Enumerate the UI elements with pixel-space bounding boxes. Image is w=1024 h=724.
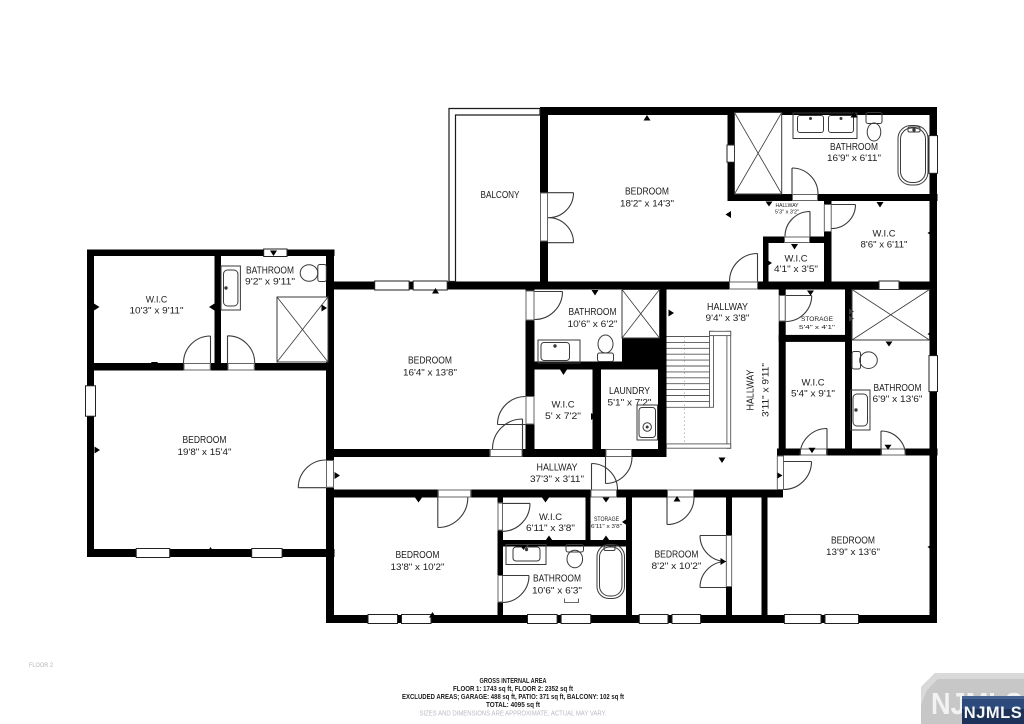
svg-text:8'6" x 6'11": 8'6" x 6'11" <box>861 240 908 250</box>
svg-text:LAUNDRY: LAUNDRY <box>609 386 650 397</box>
svg-text:5'4" x 4'1": 5'4" x 4'1" <box>799 325 835 331</box>
svg-text:W.I.C: W.I.C <box>539 512 563 522</box>
svg-text:HALLWAY: HALLWAY <box>707 302 748 313</box>
svg-text:FLOOR 2: FLOOR 2 <box>29 662 53 669</box>
svg-text:W.I.C: W.I.C <box>552 400 576 410</box>
svg-text:13'9" x 13'6": 13'9" x 13'6" <box>826 547 880 557</box>
svg-text:BATHROOM: BATHROOM <box>533 574 581 585</box>
svg-text:16'9" x 6'11": 16'9" x 6'11" <box>827 153 881 163</box>
svg-text:10'6" x 6'3": 10'6" x 6'3" <box>532 586 582 596</box>
svg-text:STORAGE: STORAGE <box>801 316 833 323</box>
svg-text:6'11" x 3'8": 6'11" x 3'8" <box>526 523 575 533</box>
svg-text:13'8" x 10'2": 13'8" x 10'2" <box>391 562 445 572</box>
svg-text:6'9" x 13'6": 6'9" x 13'6" <box>873 394 923 404</box>
svg-text:BEDROOM: BEDROOM <box>831 536 875 547</box>
svg-text:BATHROOM: BATHROOM <box>569 307 617 318</box>
svg-text:19'8" x 15'4": 19'8" x 15'4" <box>178 447 232 457</box>
svg-text:3'11" x 9'11": 3'11" x 9'11" <box>761 363 771 417</box>
svg-text:BATHROOM: BATHROOM <box>246 266 294 277</box>
svg-text:NJMLS: NJMLS <box>964 704 1022 722</box>
svg-text:BEDROOM: BEDROOM <box>396 550 440 561</box>
svg-text:6'11" x 3'8": 6'11" x 3'8" <box>591 524 622 530</box>
svg-text:5'4" x 9'1": 5'4" x 9'1" <box>791 389 835 399</box>
svg-text:W.I.C: W.I.C <box>785 254 809 264</box>
svg-text:10'3" x 9'11": 10'3" x 9'11" <box>130 306 184 316</box>
svg-text:HALLWAY: HALLWAY <box>776 203 799 209</box>
svg-text:5'3" x 3'2": 5'3" x 3'2" <box>775 210 799 216</box>
svg-text:5' x 7'2": 5' x 7'2" <box>545 411 581 421</box>
svg-text:10'6" x 6'2": 10'6" x 6'2" <box>568 319 618 329</box>
svg-text:16'4" x 13'8": 16'4" x 13'8" <box>403 368 457 378</box>
svg-text:STORAGE: STORAGE <box>594 516 619 523</box>
svg-text:37'3" x 3'11": 37'3" x 3'11" <box>530 474 584 484</box>
svg-text:W.I.C: W.I.C <box>873 229 897 239</box>
svg-text:5'1" x 7'2": 5'1" x 7'2" <box>608 398 652 408</box>
svg-text:W.I.C: W.I.C <box>146 295 168 305</box>
svg-text:BATHROOM: BATHROOM <box>874 383 922 394</box>
svg-text:BEDROOM: BEDROOM <box>655 550 699 561</box>
svg-text:9'4" x 3'8": 9'4" x 3'8" <box>706 313 750 323</box>
svg-text:SIZES AND DIMENSIONS ARE APPRO: SIZES AND DIMENSIONS ARE APPROXIMATE, AC… <box>420 709 607 718</box>
svg-text:4'1" x 3'5": 4'1" x 3'5" <box>774 264 818 274</box>
svg-text:W.I.C: W.I.C <box>802 378 826 388</box>
svg-text:BEDROOM: BEDROOM <box>408 356 452 367</box>
svg-text:BALCONY: BALCONY <box>481 190 520 201</box>
svg-text:HALLWAY: HALLWAY <box>746 369 757 410</box>
svg-text:BATHROOM: BATHROOM <box>830 142 878 153</box>
svg-text:BEDROOM: BEDROOM <box>183 435 227 446</box>
svg-text:8'2" x 10'2": 8'2" x 10'2" <box>652 561 702 571</box>
svg-text:BEDROOM: BEDROOM <box>625 187 669 198</box>
svg-text:9'2" x 9'11": 9'2" x 9'11" <box>245 277 295 287</box>
svg-text:18'2" x 14'3": 18'2" x 14'3" <box>620 199 674 209</box>
svg-text:HALLWAY: HALLWAY <box>537 463 578 474</box>
